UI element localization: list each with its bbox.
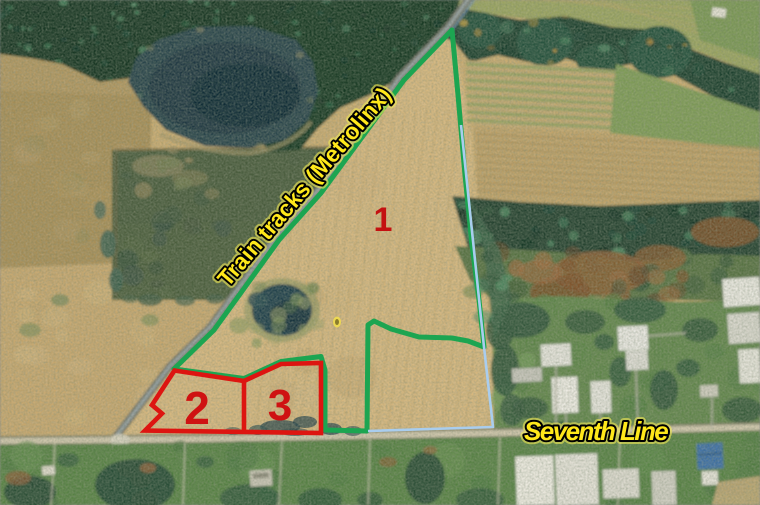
svg-text:3: 3 [268, 381, 292, 430]
svg-text:1: 1 [374, 201, 393, 239]
svg-text:2: 2 [184, 382, 210, 434]
svg-text:Seventh Line: Seventh Line [524, 416, 668, 446]
